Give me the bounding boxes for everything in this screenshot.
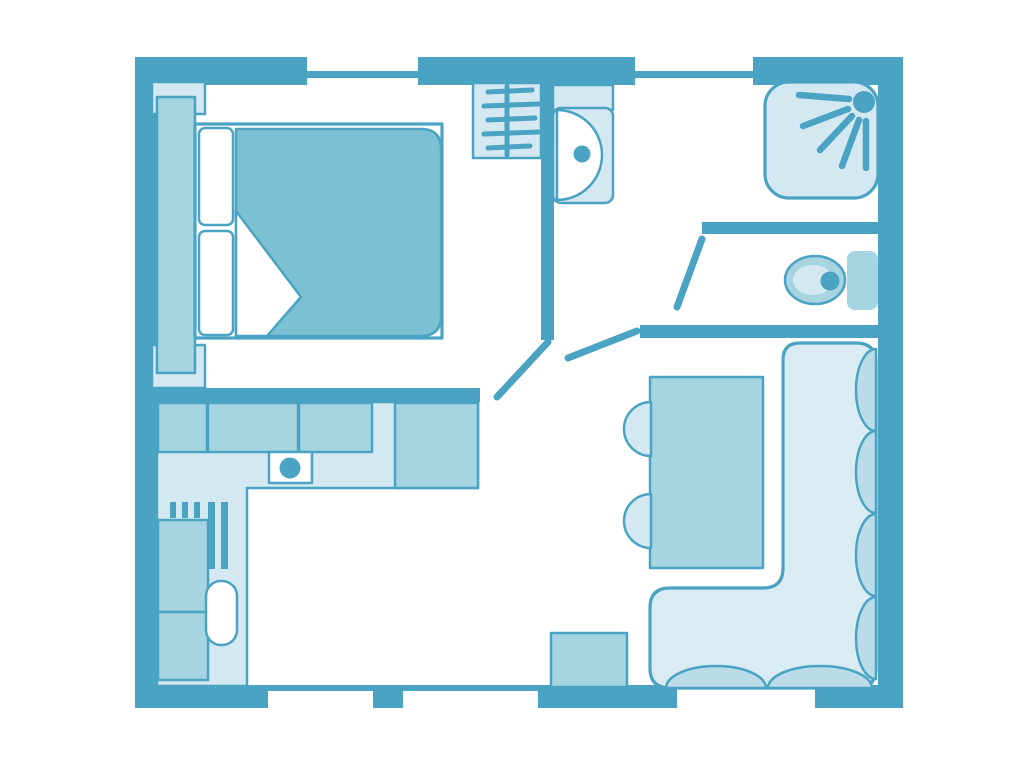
- bedroom-south-wall: [158, 388, 480, 402]
- pillow: [199, 231, 233, 335]
- kitchen-cabinet: [208, 403, 298, 452]
- refrigerator-lower: [158, 612, 208, 680]
- shower-head-icon: [853, 91, 875, 113]
- hanger-icon: [484, 132, 538, 134]
- living-north-wall: [640, 325, 878, 338]
- bottom-wall-segment: [373, 685, 403, 708]
- washbasin-shelf: [553, 85, 613, 110]
- wc-north-wall: [702, 222, 878, 234]
- radiator-bar: [221, 502, 228, 569]
- window-bottom-2: [403, 685, 538, 691]
- bedroom: [152, 82, 442, 388]
- kitchen: [157, 402, 478, 686]
- bottom-wall-segment: [135, 685, 268, 708]
- kitchen-cabinet: [158, 403, 207, 452]
- shower-spray-icon: [799, 95, 849, 99]
- doors: [497, 239, 702, 397]
- chair: [624, 402, 651, 456]
- shower: [765, 82, 878, 198]
- wc-door-leaf: [677, 239, 702, 307]
- bathroom: [473, 82, 878, 203]
- refrigerator: [158, 520, 208, 612]
- floor-plan-page: [0, 0, 1024, 768]
- side-table: [551, 633, 627, 687]
- wc: [785, 251, 878, 310]
- living-room: [551, 343, 876, 688]
- wardrobe: [157, 97, 195, 373]
- kitchen-cabinet: [395, 403, 478, 488]
- chair: [624, 494, 651, 548]
- toilet-cistern: [847, 251, 878, 310]
- sink-drain-icon: [280, 458, 301, 479]
- radiator-fin: [194, 502, 200, 518]
- top-wall-segment: [418, 57, 635, 85]
- hanger-icon: [488, 146, 530, 148]
- kitchen-cabinet: [299, 403, 372, 452]
- bottom-wall-segment: [538, 685, 677, 708]
- living-door-leaf: [568, 331, 637, 358]
- toilet-flush-icon: [821, 272, 840, 291]
- radiator-fin: [170, 502, 176, 518]
- washbasin: [553, 85, 613, 203]
- pillow: [199, 128, 233, 225]
- floor-plan: [0, 0, 1024, 768]
- bedroom-door-leaf: [497, 342, 548, 397]
- hanger-icon: [484, 104, 538, 106]
- hanger-icon: [488, 118, 535, 120]
- right-wall: [878, 57, 903, 708]
- dining-table: [650, 377, 763, 568]
- window-bottom-1: [268, 685, 373, 691]
- refrigerator-handle: [206, 581, 237, 645]
- faucet-icon: [574, 146, 591, 163]
- window-top-2: [635, 71, 753, 78]
- radiator-fin: [182, 502, 188, 518]
- window-top-1: [307, 71, 418, 78]
- hanger-icon: [488, 90, 532, 92]
